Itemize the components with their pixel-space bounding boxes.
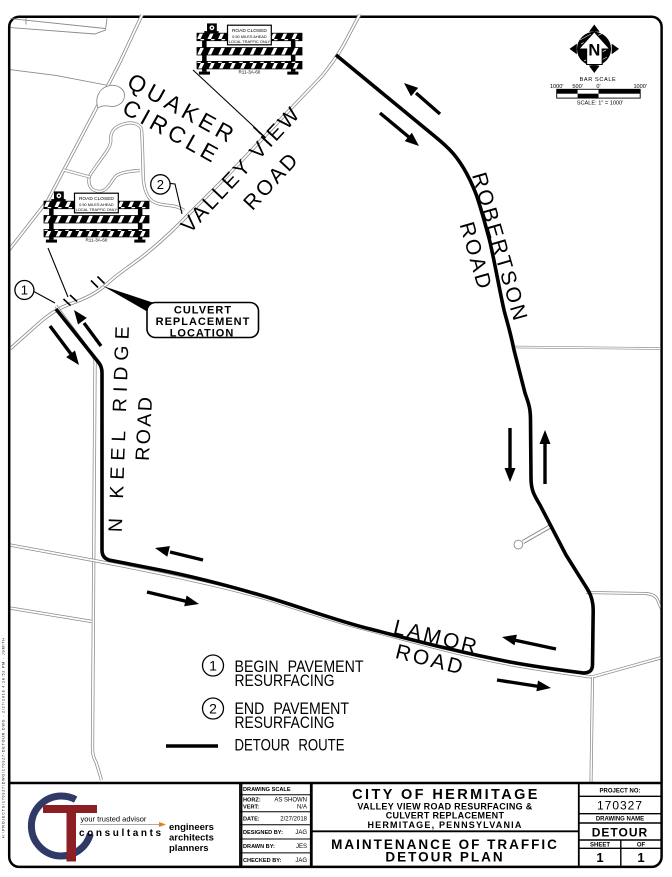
svg-text:170327: 170327	[597, 799, 643, 813]
svg-text:2/27/2018: 2/27/2018	[280, 817, 307, 823]
svg-text:1: 1	[209, 658, 217, 674]
svg-text:planners: planners	[169, 843, 209, 854]
svg-text:JAG: JAG	[295, 830, 307, 836]
svg-text:ROAD: ROAD	[132, 394, 157, 461]
svg-text:1: 1	[637, 850, 644, 865]
svg-text:H:\PROJECTS\170327\DWG\170327-: H:\PROJECTS\170327\DWG\170327-DETOUR.DWG…	[2, 638, 6, 838]
svg-text:1: 1	[21, 283, 28, 298]
svg-text:1: 1	[596, 850, 603, 865]
svg-text:DATE:: DATE:	[243, 817, 260, 823]
svg-text:2: 2	[157, 177, 164, 192]
svg-text:VERT:: VERT:	[243, 805, 259, 811]
svg-text:DETOUR ROUTE: DETOUR ROUTE	[235, 736, 345, 754]
svg-text:DRAWING NAME: DRAWING NAME	[596, 817, 644, 823]
svg-text:SHEET: SHEET	[590, 842, 610, 848]
svg-text:PROJECT NO:: PROJECT NO:	[599, 789, 640, 795]
svg-text:RESURFACING: RESURFACING	[235, 672, 335, 690]
svg-text:DETOUR: DETOUR	[592, 826, 648, 840]
svg-text:CHECKED BY:: CHECKED BY:	[243, 858, 282, 864]
svg-text:DRAWN BY:: DRAWN BY:	[243, 844, 275, 850]
svg-text:HORZ:: HORZ:	[243, 798, 261, 804]
svg-text:N: N	[588, 42, 600, 60]
svg-text:your trusted advisor: your trusted advisor	[81, 815, 147, 824]
svg-text:BAR SCALE: BAR SCALE	[580, 77, 617, 83]
svg-text:engineers: engineers	[169, 822, 214, 833]
svg-text:HERMITAGE, PENNSYLVANIA: HERMITAGE, PENNSYLVANIA	[367, 820, 522, 830]
svg-text:LOCATION: LOCATION	[170, 327, 235, 339]
svg-text:DRAWING SCALE: DRAWING SCALE	[243, 787, 291, 793]
svg-text:DESIGNED BY:: DESIGNED BY:	[243, 830, 283, 836]
svg-text:SCALE: 1" = 1000': SCALE: 1" = 1000'	[577, 101, 623, 107]
svg-text:JES: JES	[296, 844, 307, 850]
svg-text:architects: architects	[169, 833, 214, 844]
svg-text:consultants: consultants	[79, 828, 164, 839]
svg-text:REPLACEMENT: REPLACEMENT	[156, 316, 251, 328]
svg-text:2: 2	[209, 701, 217, 717]
svg-text:OF: OF	[637, 842, 646, 848]
svg-text:JAG: JAG	[295, 858, 307, 864]
svg-text:DETOUR PLAN: DETOUR PLAN	[385, 850, 504, 865]
svg-text:RESURFACING: RESURFACING	[235, 714, 335, 732]
svg-text:CULVERT: CULVERT	[174, 305, 232, 317]
svg-text:N/A: N/A	[297, 805, 307, 811]
svg-text:AS SHOWN: AS SHOWN	[274, 798, 307, 804]
